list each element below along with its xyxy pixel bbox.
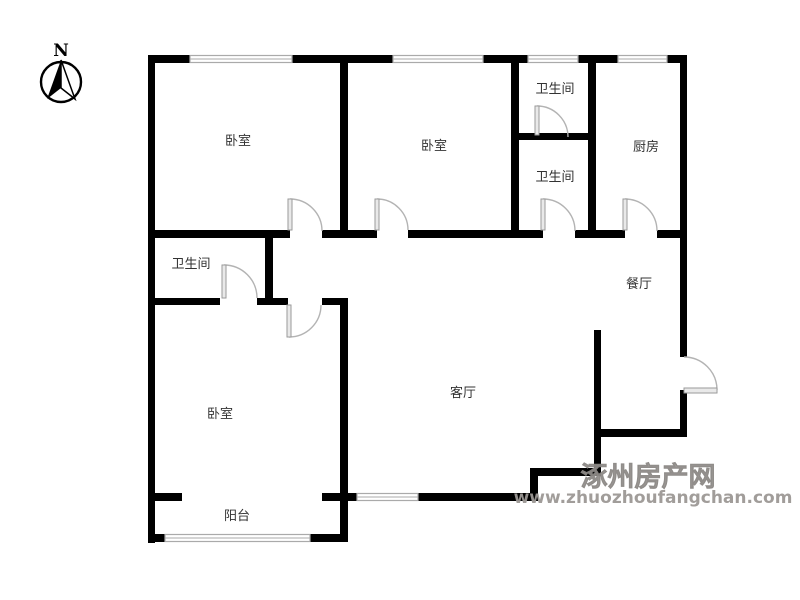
room-label-bathroom-top-lower: 卫生间 xyxy=(535,170,574,185)
wall-segment xyxy=(511,55,519,238)
door-swing-arc xyxy=(224,265,257,298)
door-leaf xyxy=(287,305,291,337)
room-label-bedroom-top-left: 卧室 xyxy=(225,133,251,149)
wall-segment xyxy=(680,55,687,357)
room-label-bathroom-master: 卫生间 xyxy=(171,257,210,272)
door-bathroom-top-upper xyxy=(535,106,568,137)
wall-segment xyxy=(148,493,182,501)
door-swing-arc xyxy=(377,199,408,230)
wall-segment xyxy=(265,237,273,305)
door-leaf xyxy=(375,199,379,230)
window-balcony xyxy=(165,535,310,542)
door-bedroom-top-middle xyxy=(375,199,408,230)
room-labels: 卧室 卧室 卫生间 卫生间 厨房 餐厅 客厅 卫生间 卧室 阳台 xyxy=(171,82,659,524)
floor-plan-drawing: 卧室 卧室 卫生间 卫生间 厨房 餐厅 客厅 卫生间 卧室 阳台 N 涿州房产网… xyxy=(0,0,800,600)
door-swing-arc xyxy=(289,305,321,337)
door-bathroom-master xyxy=(222,265,257,298)
room-label-bathroom-top-upper: 卫生间 xyxy=(535,82,574,97)
room-label-dining: 餐厅 xyxy=(626,276,652,292)
room-label-living: 客厅 xyxy=(450,385,476,401)
floor-plan-page: 卧室 卧室 卫生间 卫生间 厨房 餐厅 客厅 卫生间 卧室 阳台 N 涿州房产网… xyxy=(0,0,800,600)
compass-north-label: N xyxy=(53,41,69,61)
room-label-bedroom-top-middle: 卧室 xyxy=(421,138,447,154)
wall-segment xyxy=(594,429,687,437)
door-leaf xyxy=(623,199,627,230)
door-swing-arc xyxy=(543,199,575,231)
wall-segment xyxy=(322,298,348,305)
compass: N xyxy=(41,41,81,102)
wall-segment xyxy=(408,230,543,238)
door-swing-arc xyxy=(537,106,568,137)
door-leaf xyxy=(541,199,545,230)
wall-segment xyxy=(575,230,625,238)
window-bedroom-top-middle xyxy=(393,56,483,63)
door-bathroom-top-lower xyxy=(541,199,575,231)
wall-segment xyxy=(518,133,588,140)
wall-segment xyxy=(657,230,687,238)
door-leaf xyxy=(535,106,539,135)
window-bedroom-top-left xyxy=(190,56,292,63)
door-swing-arc xyxy=(625,199,657,231)
door-leaf xyxy=(288,199,292,230)
door-bedroom-top-left xyxy=(288,199,322,231)
room-label-balcony: 阳台 xyxy=(224,509,250,524)
watermark-site-url: www.zhuozhoufangchan.com xyxy=(514,488,793,508)
room-label-kitchen: 厨房 xyxy=(633,139,659,155)
wall-segment xyxy=(340,298,348,542)
door-bedroom-master xyxy=(287,305,321,337)
window-kitchen xyxy=(618,56,667,63)
door-leaf xyxy=(222,265,226,298)
door-swing-arc xyxy=(684,357,717,390)
wall-segment xyxy=(340,55,348,237)
wall-segment xyxy=(322,230,377,238)
wall-segment xyxy=(148,230,290,238)
wall-segment xyxy=(588,55,596,238)
window-living-room xyxy=(357,494,418,501)
wall-segment xyxy=(148,298,220,305)
door-leaf xyxy=(684,388,717,393)
wall-segment xyxy=(594,330,601,475)
door-swing-arc xyxy=(290,199,322,231)
wall-segment xyxy=(257,298,288,305)
window-bathroom-top xyxy=(528,56,578,63)
room-label-bedroom-master: 卧室 xyxy=(207,406,233,422)
door-kitchen xyxy=(623,199,657,231)
door-entrance xyxy=(684,357,717,393)
